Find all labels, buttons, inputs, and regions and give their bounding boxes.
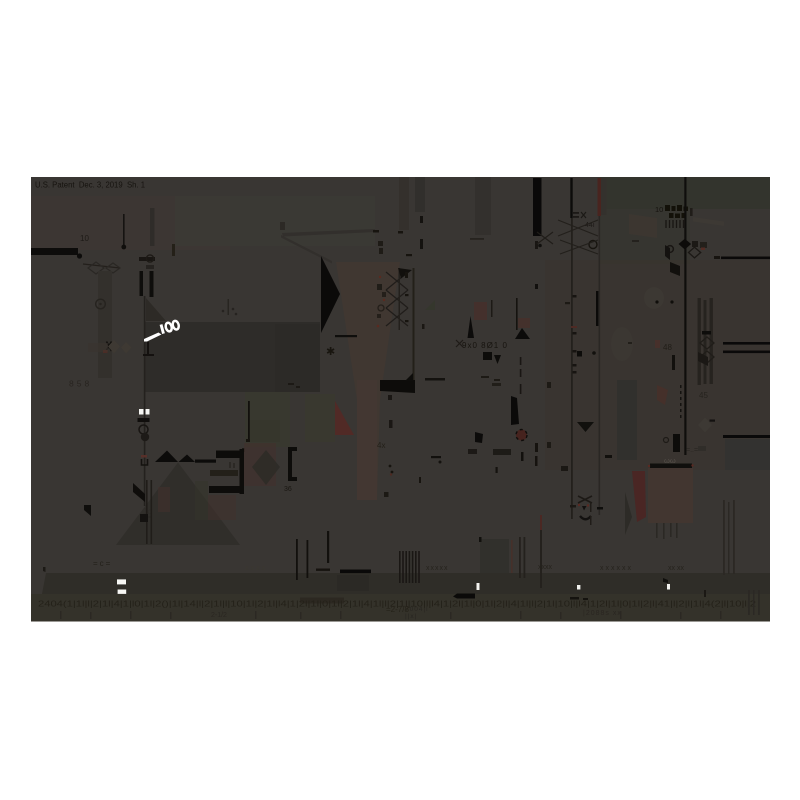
svg-text:10: 10 xyxy=(80,234,89,243)
svg-text:xxxxx: xxxxx xyxy=(426,565,449,572)
svg-text:45: 45 xyxy=(699,391,708,400)
svg-text:2-1/2: 2-1/2 xyxy=(211,612,227,619)
svg-text:xx xx: xx xx xyxy=(668,565,684,572)
svg-text:=2-7/8: =2-7/8 xyxy=(386,605,409,614)
svg-text:10: 10 xyxy=(655,205,663,214)
svg-text:9x0 8Ø1 0: 9x0 8Ø1 0 xyxy=(462,341,508,350)
svg-text:=..=: =..= xyxy=(686,447,698,454)
svg-text:36: 36 xyxy=(284,486,292,493)
svg-text:xxxx: xxxx xyxy=(245,565,267,572)
svg-text:xxxx: xxxx xyxy=(538,564,553,571)
svg-text:✱: ✱ xyxy=(326,346,335,358)
svg-text:ωω: ωω xyxy=(664,456,676,465)
svg-text:=c=: =c= xyxy=(93,559,112,568)
svg-text:|2088s xx: |2088s xx xyxy=(583,610,622,617)
svg-text:858: 858 xyxy=(69,379,92,389)
svg-text:||x|: ||x| xyxy=(405,613,417,620)
svg-text:48: 48 xyxy=(663,343,672,352)
svg-text:4x: 4x xyxy=(377,441,385,450)
svg-text:xxxxxx: xxxxxx xyxy=(600,565,633,572)
svg-text:U.S. Patent Dec. 3, 2019 Sh.: U.S. Patent Dec. 3, 2019 Sh. 1 xyxy=(35,180,145,190)
